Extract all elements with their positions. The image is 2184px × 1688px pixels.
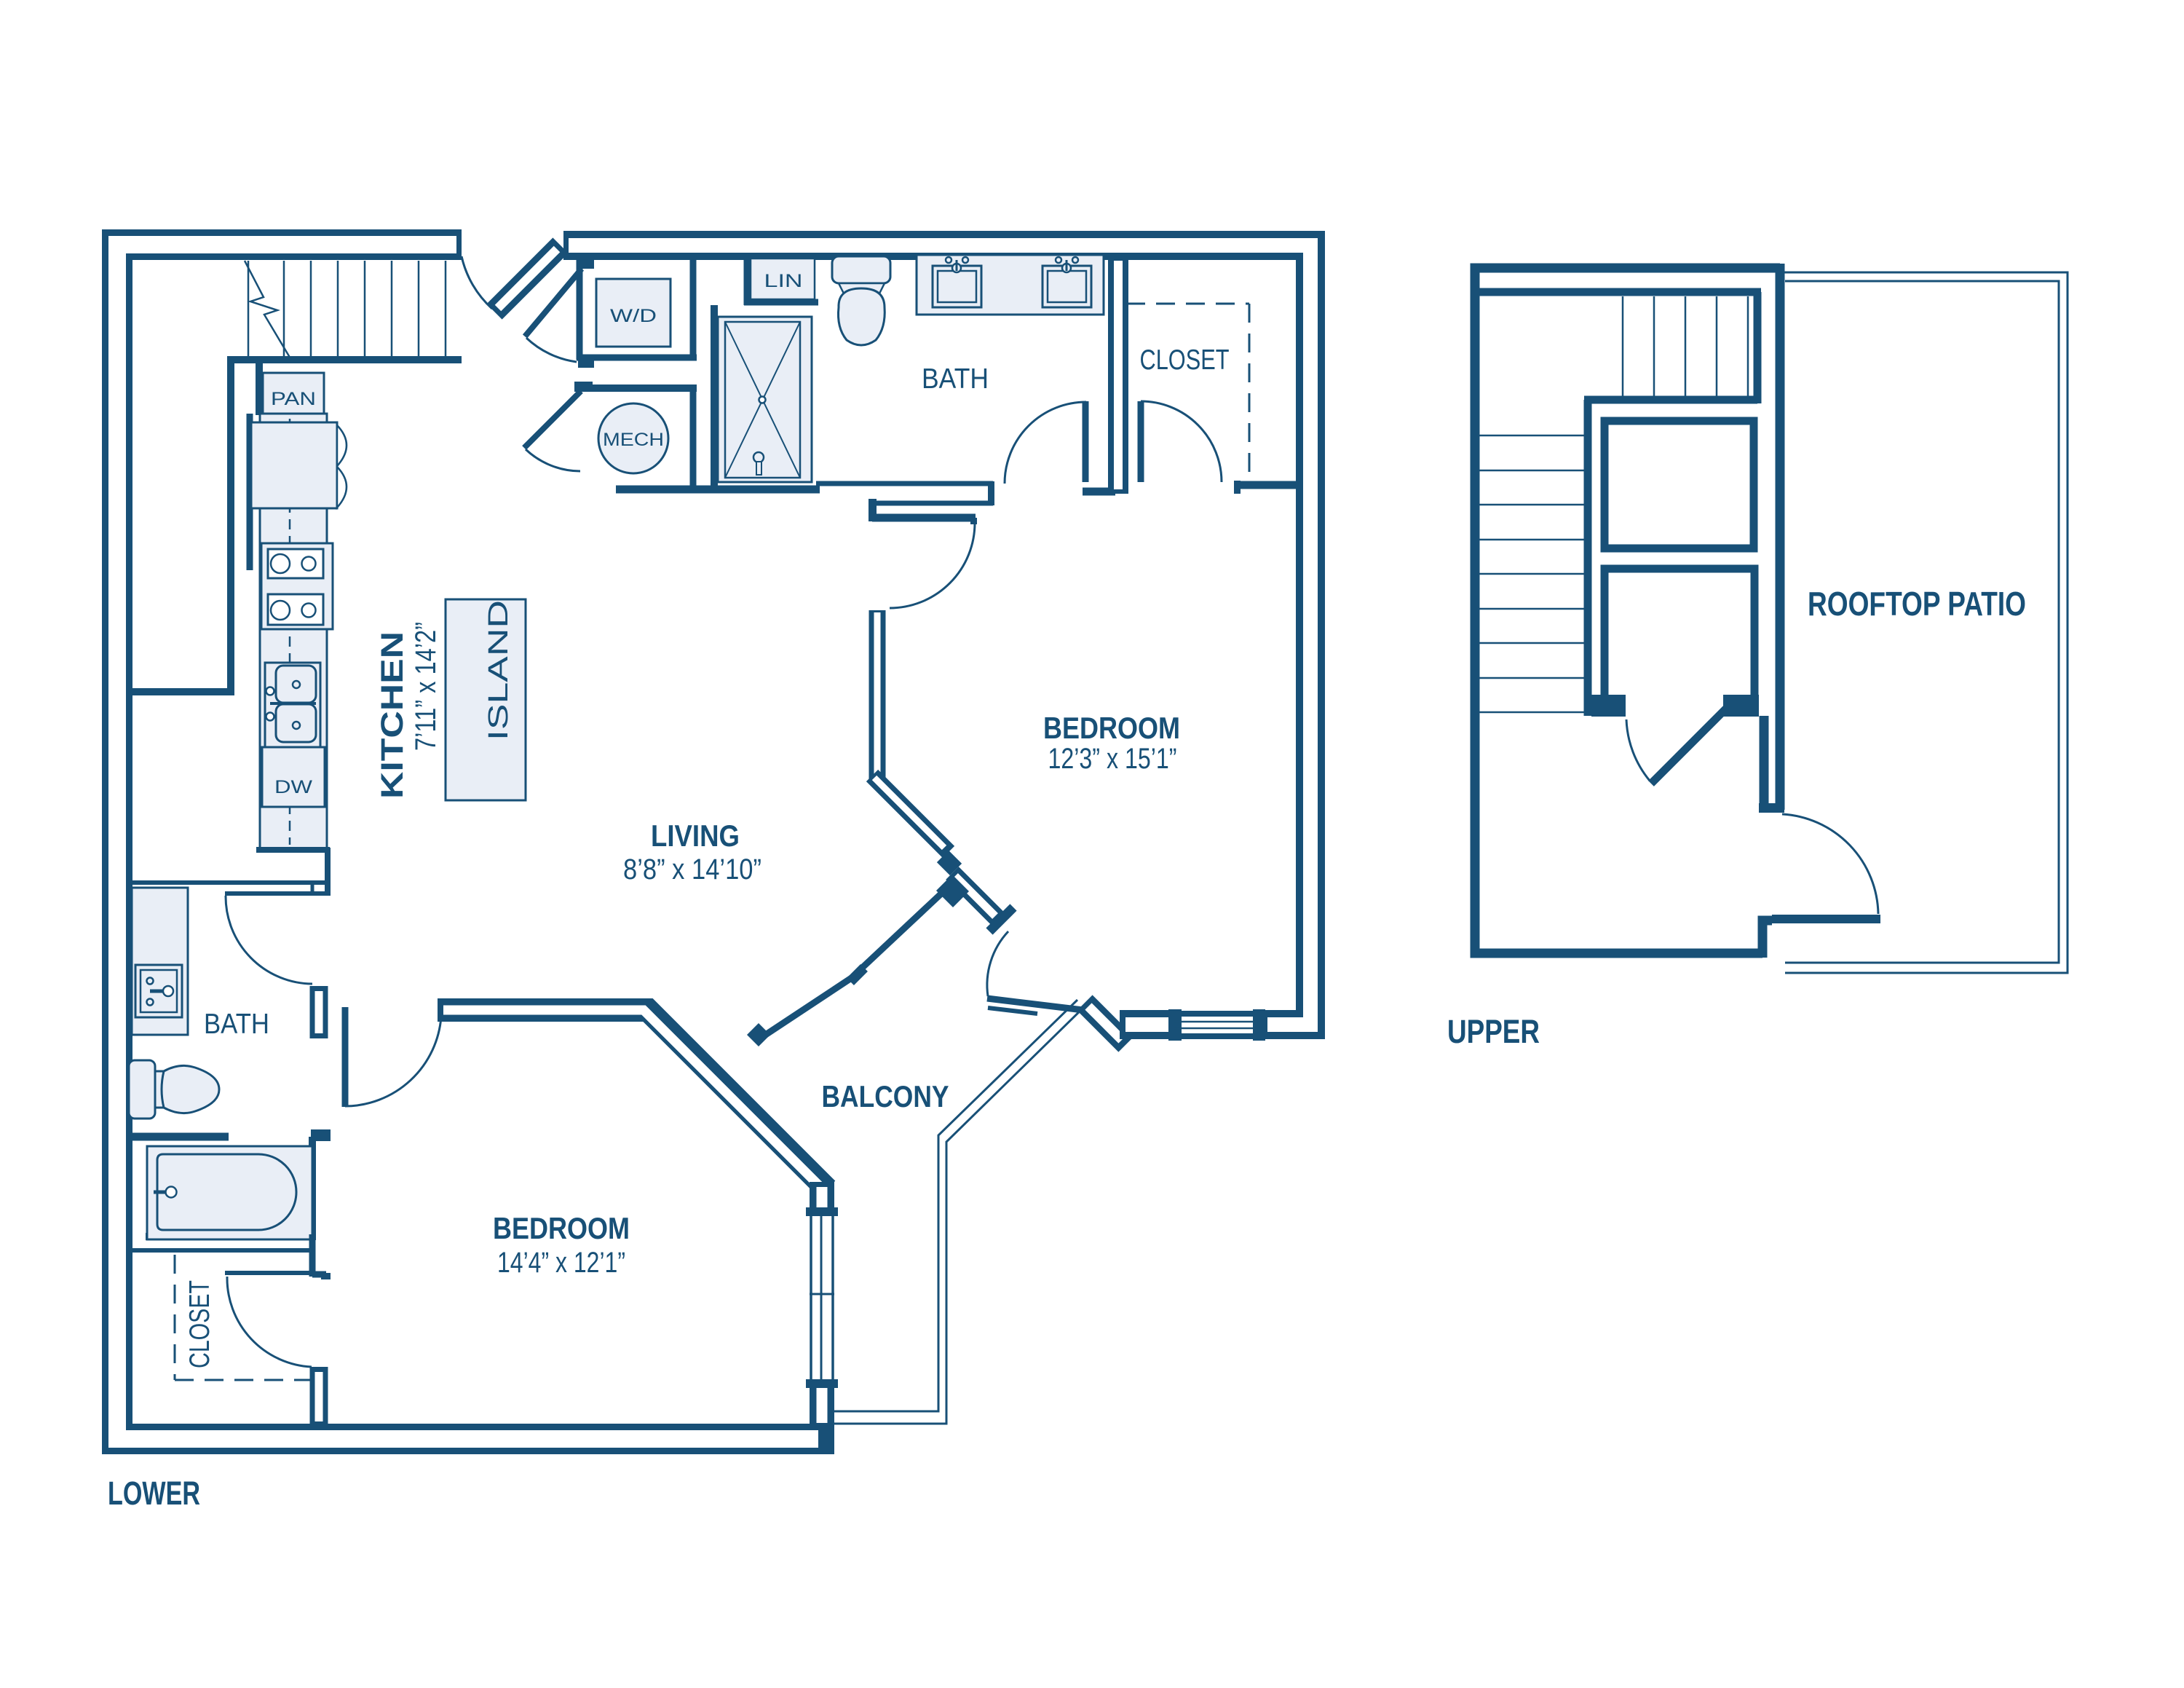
svg-text:14’4” x 12’1”: 14’4” x 12’1” [497, 1247, 625, 1279]
svg-text:ROOFTOP PATIO: ROOFTOP PATIO [1808, 585, 2026, 623]
svg-text:UPPER: UPPER [1447, 1013, 1540, 1050]
svg-text:PAN: PAN [271, 389, 316, 409]
svg-text:CLOSET: CLOSET [184, 1280, 215, 1368]
svg-text:DW: DW [274, 777, 312, 797]
svg-text:BALCONY: BALCONY [822, 1079, 949, 1113]
svg-text:7’11” x 14’2”: 7’11” x 14’2” [410, 622, 442, 751]
svg-text:LOWER: LOWER [108, 1475, 200, 1512]
svg-text:KITCHEN: KITCHEN [375, 631, 410, 799]
svg-text:LIN: LIN [764, 271, 803, 291]
svg-text:BATH: BATH [922, 363, 989, 395]
svg-text:LIVING: LIVING [651, 819, 740, 853]
svg-text:BEDROOM: BEDROOM [493, 1211, 630, 1245]
svg-text:BATH: BATH [204, 1009, 269, 1040]
svg-text:BEDROOM: BEDROOM [1043, 711, 1180, 745]
svg-text:8’8” x 14’10”: 8’8” x 14’10” [623, 853, 761, 886]
svg-text:12’3” x 15’1”: 12’3” x 15’1” [1048, 743, 1177, 775]
svg-text:MECH: MECH [603, 430, 664, 450]
svg-text:ISLAND: ISLAND [483, 600, 514, 741]
svg-text:W/D: W/D [610, 306, 657, 326]
svg-text:CLOSET: CLOSET [1140, 344, 1230, 376]
